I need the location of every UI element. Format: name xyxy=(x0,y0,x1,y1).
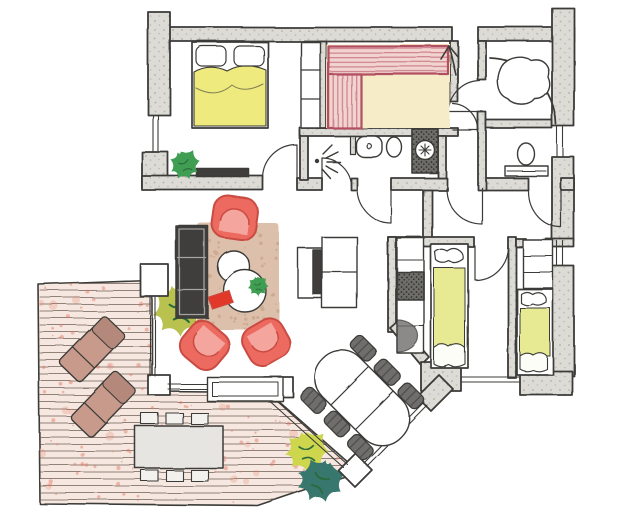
wall-kids-divider xyxy=(508,237,516,378)
sauna xyxy=(326,44,450,128)
outdoor-chair xyxy=(166,413,183,424)
hall-cabinet xyxy=(298,237,357,308)
wall-corridor-c xyxy=(391,178,447,190)
wall-kids1-west xyxy=(388,237,396,332)
bathtub-room xyxy=(490,57,556,124)
wall-tubroom-west xyxy=(478,41,486,80)
wall-top-left xyxy=(150,27,452,41)
post-sw xyxy=(148,375,170,395)
floor-plan-drawing xyxy=(0,0,640,515)
wall-kids-hall-west xyxy=(423,190,432,238)
sauna-bench-top xyxy=(328,46,448,74)
washing-machine xyxy=(412,129,438,173)
sauna-bench-left xyxy=(328,74,361,128)
shower-head-icon xyxy=(315,145,340,178)
wall-wc-west xyxy=(478,112,486,190)
wall-east-2 xyxy=(552,157,574,241)
bedroom-wardrobe-shelf xyxy=(301,42,320,128)
wall-bedroom-south xyxy=(142,176,263,190)
window-bench xyxy=(207,377,283,401)
wc-room xyxy=(505,143,548,176)
door-kids-hall xyxy=(446,188,482,224)
pillow xyxy=(234,46,264,66)
washbasin xyxy=(356,136,382,157)
outdoor-chair xyxy=(166,470,183,481)
floor-plan-canvas xyxy=(0,0,640,515)
wall-corridor-d xyxy=(482,178,528,190)
door-sauna xyxy=(453,104,478,130)
wc-toilet xyxy=(518,143,535,165)
outdoor-table xyxy=(135,426,223,468)
kids-wardrobe xyxy=(397,238,424,353)
wall-corridor-e xyxy=(561,178,574,190)
wall-corridor-b xyxy=(351,178,357,190)
pillow xyxy=(521,292,546,305)
tv-sideboard xyxy=(176,226,208,318)
cabinet-mirror-panel xyxy=(313,250,321,294)
wall-east-1 xyxy=(552,8,574,126)
kids-room-2 xyxy=(517,240,553,375)
pillow xyxy=(435,249,463,263)
window-bedroom-west xyxy=(153,115,158,152)
corner-bathtub xyxy=(498,57,550,104)
post-nw xyxy=(140,264,168,296)
wardrobe-hatch-block xyxy=(397,272,424,300)
outdoor-chair xyxy=(141,470,158,481)
armchair-top xyxy=(210,194,259,242)
wall-tub-wc-divider xyxy=(486,120,552,128)
door-bedroom xyxy=(263,145,297,178)
door-living xyxy=(357,188,391,223)
wall-bath-west xyxy=(300,130,308,180)
kids-bed-2 xyxy=(517,289,553,375)
window-east-wc xyxy=(557,126,563,157)
outdoor-chair xyxy=(191,413,208,424)
bedroom-sideboard xyxy=(197,169,249,177)
kids-shelf xyxy=(523,240,553,288)
wall-east-3 xyxy=(552,266,574,376)
outdoor-chair xyxy=(191,470,208,481)
wall-shower-partition xyxy=(350,136,355,154)
outdoor-chair xyxy=(141,413,158,424)
double-bed xyxy=(192,42,268,128)
wall-pillar-nw xyxy=(148,12,170,115)
kids-bed-1 xyxy=(431,244,468,368)
toilet xyxy=(387,137,402,157)
wall-bath-east xyxy=(438,136,446,178)
folded-blanket xyxy=(520,353,547,372)
kids-room-1 xyxy=(397,238,468,368)
door-kids-room-1 xyxy=(475,246,508,280)
living-room xyxy=(174,194,296,401)
folded-blanket xyxy=(434,344,465,367)
pillow xyxy=(196,46,226,66)
